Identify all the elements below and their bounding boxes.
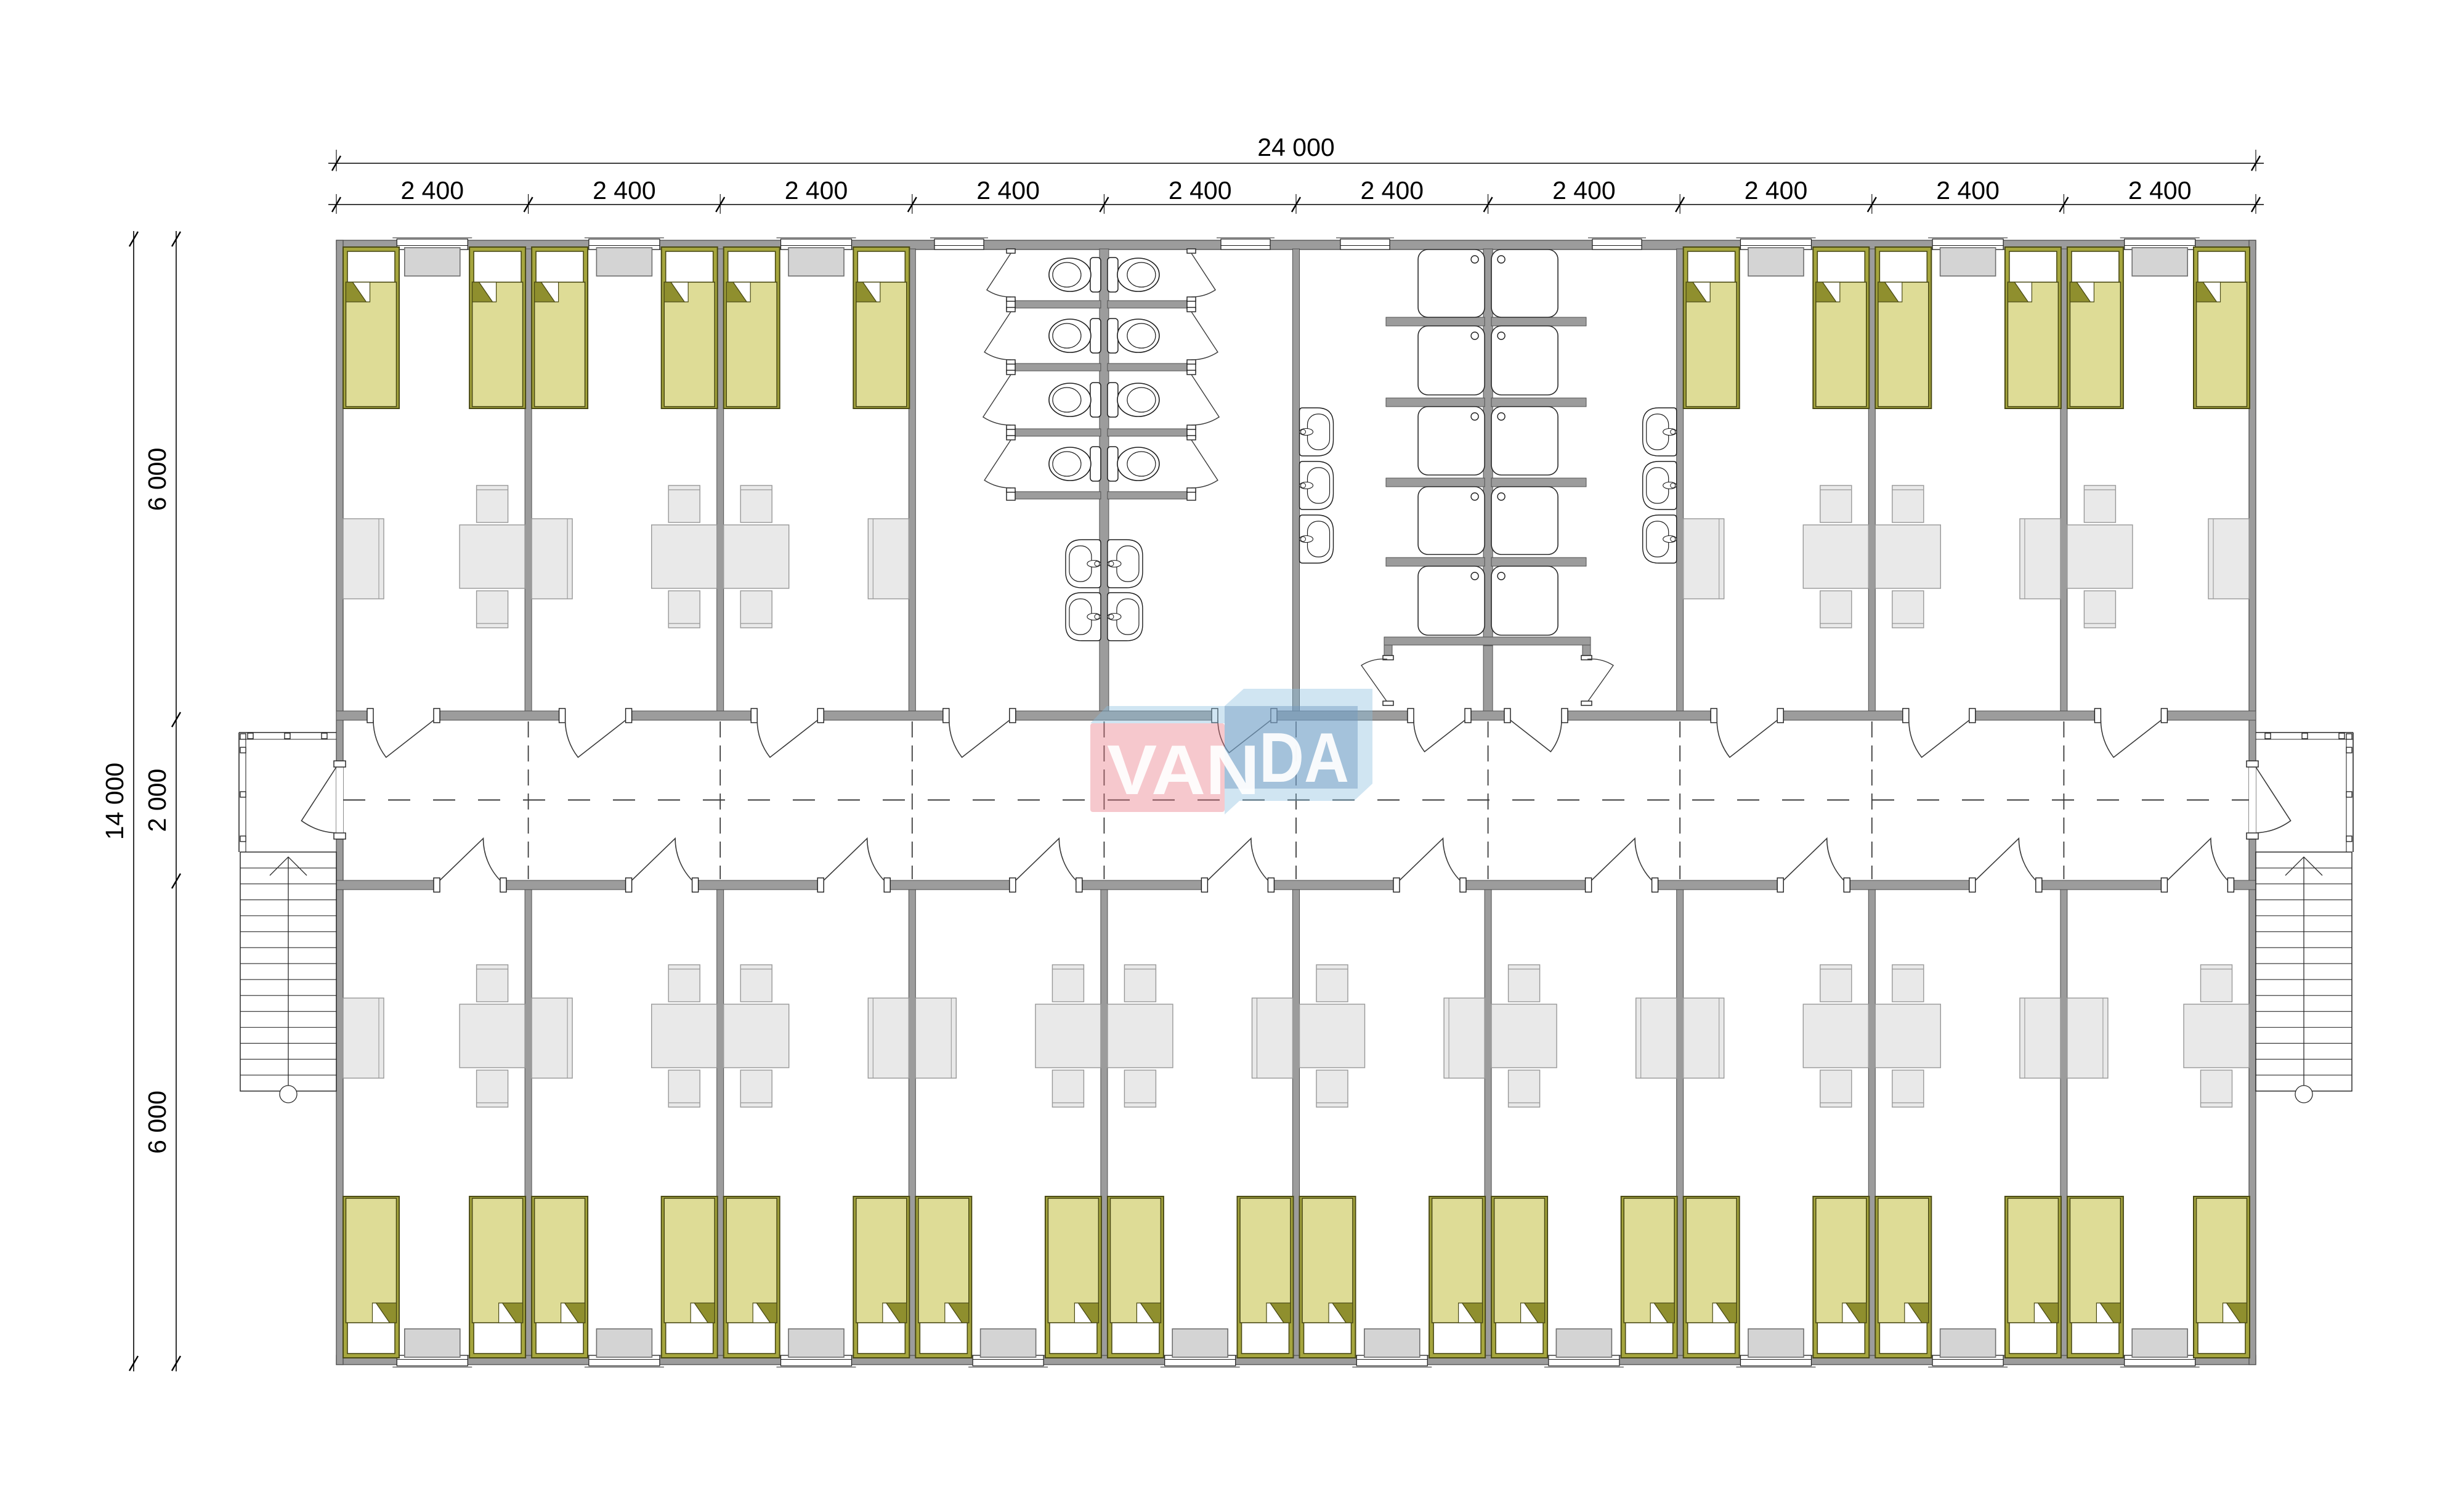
svg-text:2 400: 2 400: [593, 176, 656, 205]
svg-text:2 400: 2 400: [976, 176, 1040, 205]
svg-text:14 000: 14 000: [100, 763, 129, 840]
svg-text:2 400: 2 400: [1936, 176, 2000, 205]
svg-text:6 000: 6 000: [143, 448, 171, 511]
svg-text:2 400: 2 400: [2128, 176, 2192, 205]
svg-text:2 400: 2 400: [400, 176, 464, 205]
svg-text:DA: DA: [1259, 719, 1349, 797]
svg-text:2 400: 2 400: [785, 176, 848, 205]
svg-text:2 000: 2 000: [143, 769, 171, 832]
svg-text:6 000: 6 000: [143, 1090, 171, 1154]
svg-text:VAN: VAN: [1107, 731, 1260, 810]
svg-text:2 400: 2 400: [1169, 176, 1232, 205]
svg-text:2 400: 2 400: [1552, 176, 1616, 205]
svg-text:2 400: 2 400: [1745, 176, 1808, 205]
svg-text:2 400: 2 400: [1360, 176, 1424, 205]
svg-text:24 000: 24 000: [1257, 133, 1334, 161]
